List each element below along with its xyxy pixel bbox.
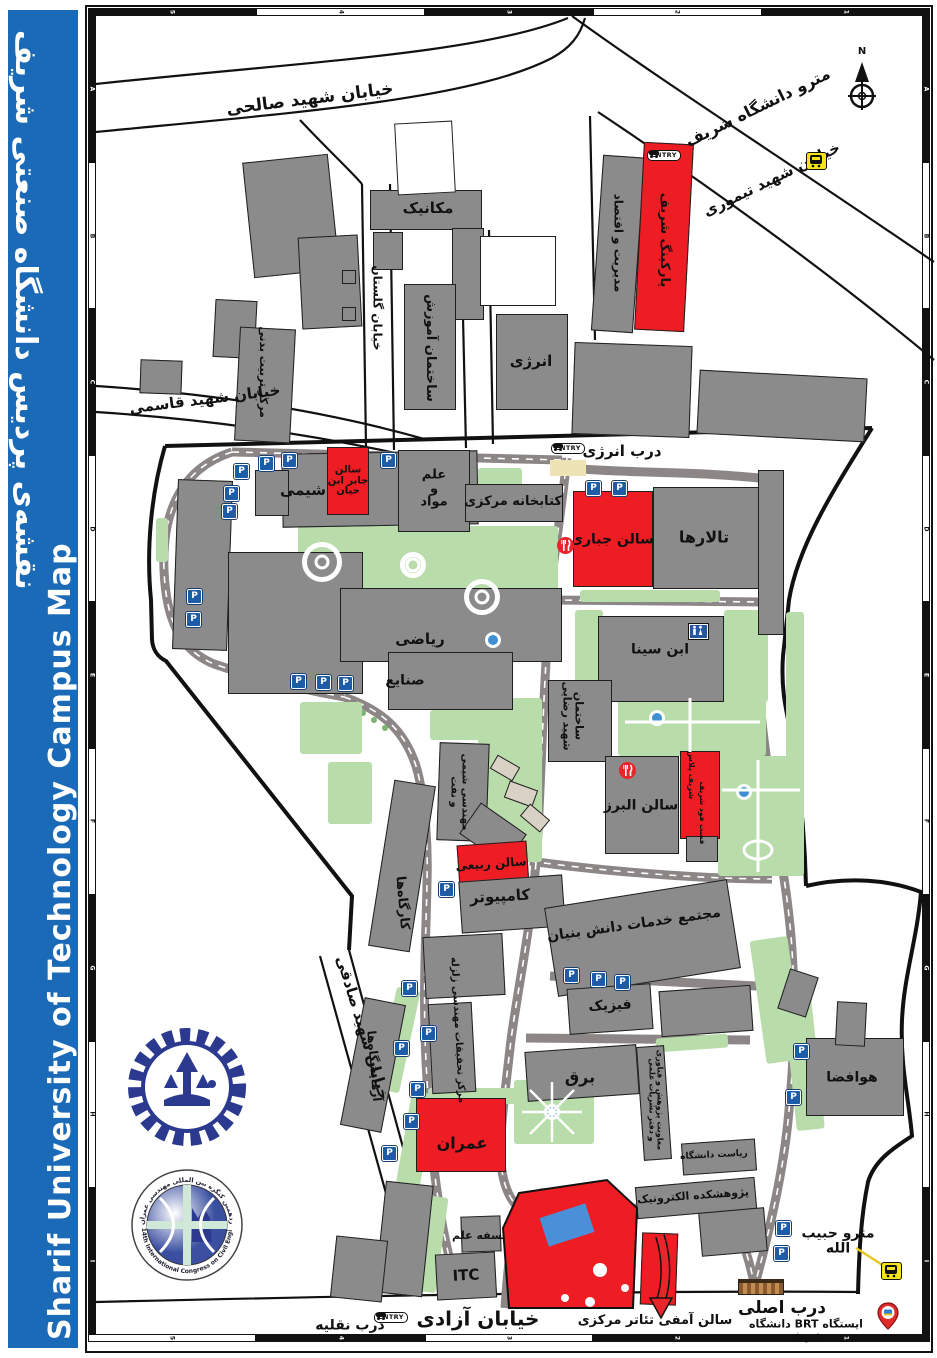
fountain-circle (302, 542, 342, 582)
entry-gate-icon: ENTRY (374, 1312, 408, 1323)
parking-icon: P (282, 453, 297, 468)
parking-icon: P (381, 453, 396, 468)
parking-icon: P (291, 674, 306, 689)
map-label: مکانیک (403, 201, 454, 217)
main-gate-structure (738, 1279, 784, 1295)
parking-icon: P (187, 589, 202, 604)
building-gray (698, 1207, 768, 1257)
wc-figures-glyph (690, 625, 705, 636)
entry-gate-icon: ENTRY (647, 150, 681, 161)
restaurant-icon (557, 537, 574, 554)
parking-icon: P (224, 486, 239, 501)
green-area (786, 612, 804, 862)
map-label: خیابان گلستان (371, 265, 384, 350)
map-label: ساختمان آموزش (423, 294, 437, 402)
building-gray (659, 985, 754, 1037)
map-label: علم و مواد (420, 469, 447, 510)
map-label: صنایع (385, 674, 424, 689)
map-label: هوافضا (826, 1071, 878, 1086)
map-label: مرکز تربیت بدنی (257, 326, 269, 418)
green-area (156, 518, 168, 562)
parking-icon: P (612, 481, 627, 496)
building-gray (422, 933, 505, 999)
building-gray (571, 342, 692, 438)
map-label: سالن آمفی تئاتر مرکزی (578, 1314, 733, 1328)
map-label: انرژی (510, 354, 553, 370)
map-label: سالن جابر ابن حیان (328, 465, 369, 497)
pond-dot (736, 784, 752, 800)
parking-icon: P (316, 675, 331, 690)
parking-icon: P (776, 1221, 791, 1236)
fountain-circle (400, 552, 426, 578)
building-gray (139, 359, 182, 394)
map-label: ایستگاه BRT دانشگاه شریف (741, 1318, 872, 1341)
building-gray (342, 307, 356, 321)
metro-station-icon (881, 1262, 902, 1280)
wc-icon (689, 624, 708, 639)
building-gray (342, 270, 356, 284)
building-gray (340, 588, 562, 662)
green-area (538, 1188, 562, 1260)
green-area (430, 710, 492, 740)
parking-icon: P (404, 1114, 419, 1129)
building-gray (330, 1235, 388, 1302)
map-label: شیمی (280, 483, 326, 499)
green-area (580, 590, 720, 602)
map-label: ITC (452, 1267, 480, 1284)
car-icon (551, 443, 565, 452)
building-highlight-red (640, 1232, 678, 1305)
map-label: درب انرژی (582, 444, 661, 460)
parking-icon: P (394, 1041, 409, 1056)
parking-icon: P (564, 968, 579, 983)
parking-icon: P (338, 676, 353, 691)
map-label: کامپیوتر (469, 888, 530, 907)
map-label: N (858, 47, 866, 58)
entry-gate-icon: ENTRY (551, 443, 585, 454)
car-icon (647, 150, 661, 159)
pond-dot (544, 1104, 560, 1120)
campus-map-page: نقشه‌ی پردیس دانشگاه صنعتی شریف Sharif U… (0, 0, 937, 1358)
map-label: تالارها (679, 530, 729, 547)
map-label: ابن سینا (631, 643, 689, 658)
map-label: فلسفه علم (452, 1230, 514, 1242)
map-label: برق (565, 1070, 595, 1087)
parking-icon: P (186, 612, 201, 627)
fork-knife-glyph (557, 537, 574, 554)
building-gray (835, 1001, 867, 1047)
map-label: کتابخانه مرکزی (464, 495, 562, 509)
map-label: معاونت پژوهش و فناوری و دفتر نشریات علمی (647, 1050, 664, 1150)
pond-dot (485, 632, 501, 648)
parking-icon: P (615, 975, 630, 990)
map-label: ساختمان شهید رضایی (561, 681, 584, 750)
parking-icon: P (774, 1246, 789, 1261)
map-label: درب اصلی (738, 1300, 826, 1318)
parking-icon: P (234, 464, 249, 479)
map-label: پارکینگ شریف (657, 193, 671, 288)
parking-icon: P (222, 504, 237, 519)
restaurant-icon (619, 762, 636, 779)
pond-dot (649, 710, 665, 726)
parking-icon: P (421, 1026, 436, 1041)
parking-icon: P (382, 1146, 397, 1161)
train-glyph (882, 1263, 900, 1278)
street-salehi-north-edge (96, 18, 568, 84)
parking-icon: P (259, 456, 274, 471)
building-outline (480, 236, 556, 306)
energy-gate-pavement (550, 460, 586, 476)
map-label: مترو حبیب الله (789, 1226, 888, 1255)
map-label: شریف پلاس (687, 751, 695, 799)
parking-icon: P (439, 882, 454, 897)
map-label: فست فود شریف (698, 782, 706, 845)
building-outline (394, 121, 456, 196)
parking-icon: P (794, 1044, 809, 1059)
parking-icon: P (786, 1090, 801, 1105)
parking-icon: P (586, 481, 601, 496)
map-label: فیزیک (588, 998, 632, 1015)
map-label: عمران (437, 1136, 488, 1153)
building-gray (758, 470, 784, 635)
map-label: مدیریت و اقتصاد (612, 194, 625, 293)
parking-icon: P (402, 981, 417, 996)
green-area (328, 762, 372, 824)
metro-station-icon (806, 152, 827, 170)
map-label: مهندسی شیمی و نفت (449, 754, 470, 831)
map-label: سالن البرز (604, 799, 678, 814)
map-label: خیابان آزادی (417, 1309, 540, 1330)
fountain-circle (464, 579, 500, 615)
train-glyph (807, 153, 825, 168)
parking-icon: P (591, 972, 606, 987)
parking-icon: P (410, 1082, 425, 1097)
green-area (300, 702, 362, 754)
building-gray (696, 370, 867, 443)
fork-knife-glyph (619, 762, 636, 779)
map-label: ریاضی (395, 632, 445, 648)
building-gray (373, 232, 403, 270)
map-label: سالن جباری (570, 533, 654, 548)
car-icon (374, 1312, 388, 1321)
